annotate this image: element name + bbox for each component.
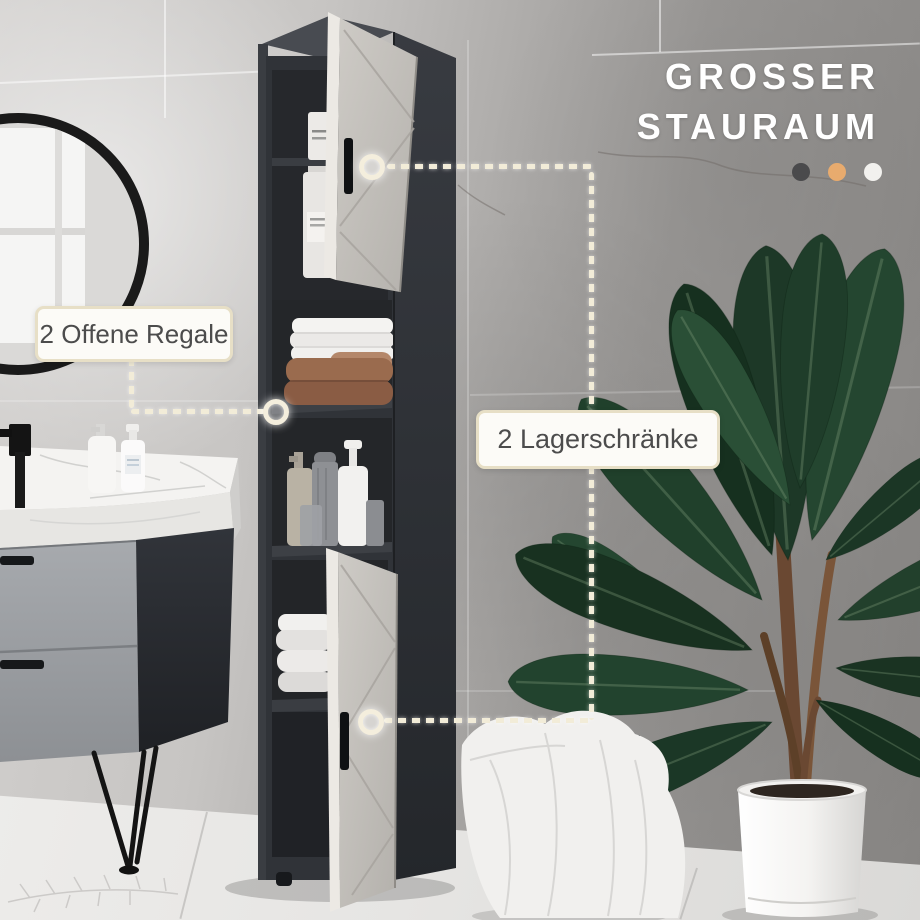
- towel-shelf: [284, 318, 394, 405]
- wall-crack: [458, 152, 866, 215]
- headline: GROSSER STAURAUM: [637, 52, 880, 152]
- lotion-bottle: [121, 424, 145, 492]
- drawer-handle: [0, 556, 34, 565]
- callout-open-shelves: 2 Offene Regale: [35, 306, 233, 362]
- connector-line: [387, 164, 592, 169]
- headline-line-2: STAURAUM: [637, 102, 880, 152]
- callout-open-shelves-label: 2 Offene Regale: [40, 319, 229, 350]
- callout-storage-cabinets-label: 2 Lagerschränke: [497, 424, 698, 455]
- headline-line-1: GROSSER: [637, 52, 880, 102]
- plant-pot: [738, 780, 866, 917]
- soap-dispenser: [88, 424, 116, 493]
- dot-orange-icon: [828, 163, 846, 181]
- connector-line: [129, 358, 134, 408]
- dot-light-icon: [864, 163, 882, 181]
- draped-towel: [461, 711, 685, 918]
- connector-line: [131, 409, 265, 414]
- accent-dots: [792, 163, 882, 181]
- vanity-legs: [94, 748, 156, 866]
- dot-dark-icon: [792, 163, 810, 181]
- vanity-side-panel: [136, 528, 234, 752]
- door-handle: [340, 712, 349, 770]
- connector-dot-open-shelf: [263, 399, 289, 425]
- floor-leaf-shadow: [8, 875, 178, 912]
- callout-storage-cabinets: 2 Lagerschränke: [476, 410, 720, 469]
- connector-dot-top-door: [359, 154, 385, 180]
- cabinet-door-top: [324, 12, 417, 292]
- connector-line: [384, 718, 590, 723]
- vanity: [0, 424, 241, 875]
- lower-towels: [276, 614, 333, 692]
- connector-dot-bottom-door: [358, 709, 384, 735]
- door-handle: [344, 138, 353, 194]
- drawer-handle: [0, 660, 44, 669]
- product-scene: 2 Offene Regale 2 Lagerschränke GROSSER …: [0, 0, 920, 920]
- laundry-basket: [461, 711, 685, 920]
- storage-cabinet: [225, 12, 456, 912]
